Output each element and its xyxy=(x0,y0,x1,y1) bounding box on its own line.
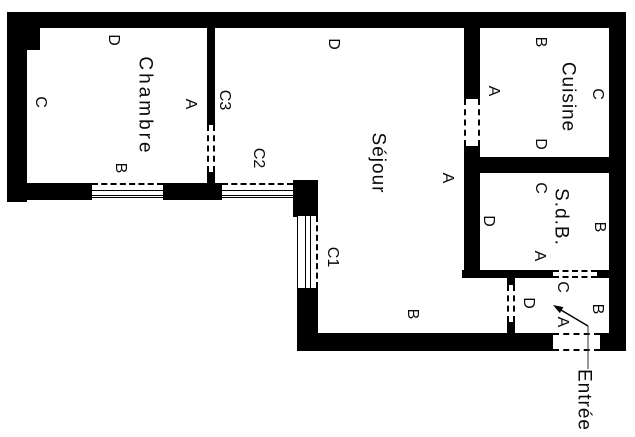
opening-label-c1: C1 xyxy=(324,247,340,267)
wall-label-hall-d: D xyxy=(520,297,536,309)
wall-label-chambre-b: B xyxy=(112,163,128,174)
wall-label-cuisine-b: B xyxy=(532,37,548,48)
wall-label-cuisine-a: A xyxy=(485,86,501,97)
window-glass-line xyxy=(92,190,163,196)
window-c2 xyxy=(222,183,293,198)
wall-exterior-bottom xyxy=(297,333,553,351)
wall-partition-stub xyxy=(207,172,215,184)
wall-corner-block-bottomright xyxy=(600,333,626,351)
wall-label-hall-b: B xyxy=(589,304,605,315)
wall-label-chambre-d: D xyxy=(105,34,121,46)
window-c1 xyxy=(297,216,318,288)
wall-label-hall-a: A xyxy=(554,317,570,328)
wall-label-sdb-b: B xyxy=(591,222,607,233)
wall-label-chambre-a: A xyxy=(182,99,198,110)
wall-partition-chambre-sejour xyxy=(207,28,215,125)
window-chambre xyxy=(92,183,163,198)
wall-label-hall-c: C xyxy=(554,281,570,293)
wall-exterior-right xyxy=(609,12,626,351)
window-glass-line xyxy=(305,216,311,288)
room-label-sdb: S.d.B. xyxy=(552,188,571,246)
wall-label-sdb-d: D xyxy=(480,215,496,227)
window-glass-line xyxy=(222,190,293,196)
wall-chambre-bottom-mid xyxy=(163,183,222,200)
entrance-label: Entrée xyxy=(575,369,594,431)
room-label-cuisine: Cuisine xyxy=(559,62,578,132)
wall-label-chambre-c: C xyxy=(32,96,48,108)
wall-label-sdb-c: C xyxy=(532,182,548,194)
wall-hall-stub-bottom xyxy=(507,322,515,334)
wall-chambre-bottom-left xyxy=(7,183,92,200)
door-opening-cuisine xyxy=(464,99,480,146)
wall-exterior-top xyxy=(7,12,626,28)
wall-label-sejour-d: D xyxy=(325,38,341,50)
opening-label-c2: C2 xyxy=(250,148,266,168)
wall-label-sdb-a: A xyxy=(531,251,547,262)
door-opening-c3 xyxy=(207,125,215,172)
wall-exterior-left xyxy=(7,12,27,202)
floor-plan: Chambre Séjour Cuisine S.d.B. D C A B D … xyxy=(0,0,635,437)
wall-sdb-bottom-right xyxy=(597,270,611,278)
wall-sdb-bottom xyxy=(462,270,553,278)
wall-label-cuisine-c: C xyxy=(589,88,605,100)
wall-corner-block-sejour xyxy=(293,180,318,217)
wall-label-sejour-b: B xyxy=(404,309,420,320)
entrance-door-opening xyxy=(553,333,600,351)
door-opening-hall xyxy=(507,285,515,322)
room-label-chambre: Chambre xyxy=(136,56,155,155)
door-opening-sdb xyxy=(553,270,597,278)
wall-label-sejour-a: A xyxy=(439,173,455,184)
wall-hall-stub-top xyxy=(507,278,515,285)
wall-divider-upper xyxy=(464,28,480,99)
opening-label-c3: C3 xyxy=(216,90,232,110)
wall-label-cuisine-d: D xyxy=(532,138,548,150)
wall-cuisine-bottom xyxy=(464,157,626,173)
wall-corner-block-topleft xyxy=(27,12,40,50)
room-label-sejour: Séjour xyxy=(369,133,388,194)
